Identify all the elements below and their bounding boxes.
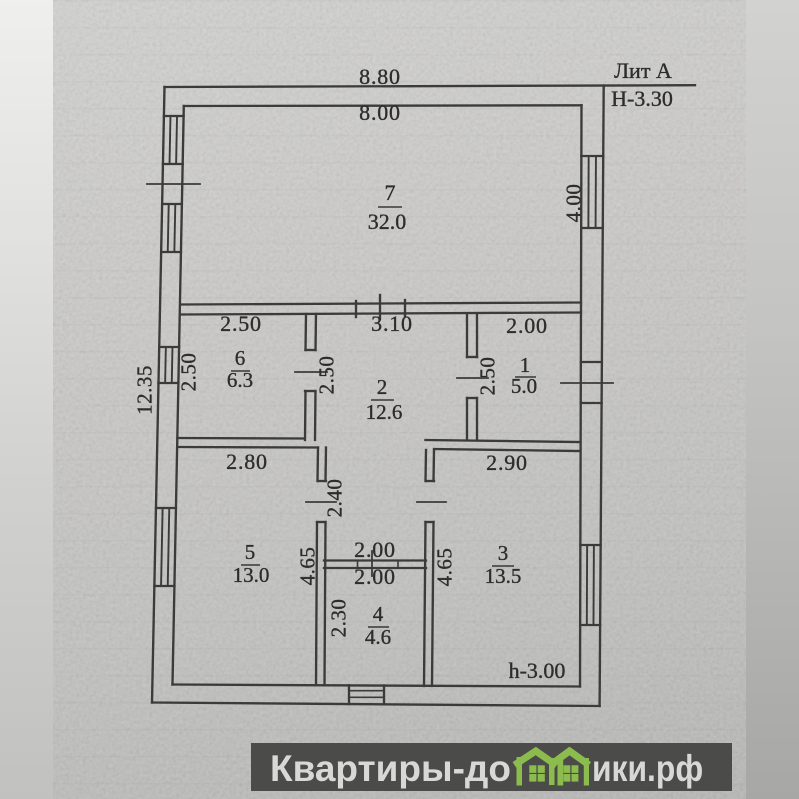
- svg-text:3: 3: [498, 541, 509, 565]
- svg-text:3.10: 3.10: [371, 311, 413, 336]
- svg-text:12.35: 12.35: [132, 365, 156, 415]
- svg-text:5.0: 5.0: [511, 374, 537, 398]
- svg-text:12.6: 12.6: [366, 400, 403, 424]
- svg-text:13.5: 13.5: [485, 564, 522, 588]
- svg-text:2.40: 2.40: [322, 479, 346, 518]
- svg-text:2.50: 2.50: [220, 311, 262, 336]
- svg-text:2.50: 2.50: [314, 356, 338, 395]
- svg-text:2.80: 2.80: [226, 449, 268, 474]
- svg-text:Лит А: Лит А: [614, 58, 672, 83]
- svg-text:2.00: 2.00: [354, 564, 396, 589]
- svg-text:4: 4: [373, 602, 384, 626]
- svg-text:4.00: 4.00: [561, 184, 585, 223]
- svg-text:2.00: 2.00: [354, 537, 396, 562]
- svg-text:13.0: 13.0: [233, 563, 270, 587]
- svg-text:5: 5: [245, 540, 256, 564]
- svg-text:8.00: 8.00: [359, 100, 401, 125]
- svg-text:4.65: 4.65: [432, 548, 456, 587]
- svg-text:32.0: 32.0: [368, 209, 407, 234]
- svg-text:2.50: 2.50: [475, 357, 499, 396]
- svg-text:2.90: 2.90: [486, 450, 528, 475]
- svg-text:6.3: 6.3: [227, 368, 253, 392]
- svg-text:Н-3.30: Н-3.30: [611, 86, 673, 111]
- svg-text:h-3.00: h-3.00: [509, 658, 566, 683]
- svg-text:4.6: 4.6: [365, 625, 391, 649]
- svg-text:2.50: 2.50: [176, 353, 200, 392]
- svg-text:8.80: 8.80: [359, 64, 401, 89]
- svg-text:6: 6: [235, 346, 246, 370]
- svg-text:7: 7: [385, 180, 396, 205]
- svg-text:2: 2: [377, 375, 388, 399]
- svg-text:4.65: 4.65: [295, 547, 319, 586]
- svg-text:2.00: 2.00: [506, 313, 548, 338]
- svg-text:2.30: 2.30: [326, 599, 350, 638]
